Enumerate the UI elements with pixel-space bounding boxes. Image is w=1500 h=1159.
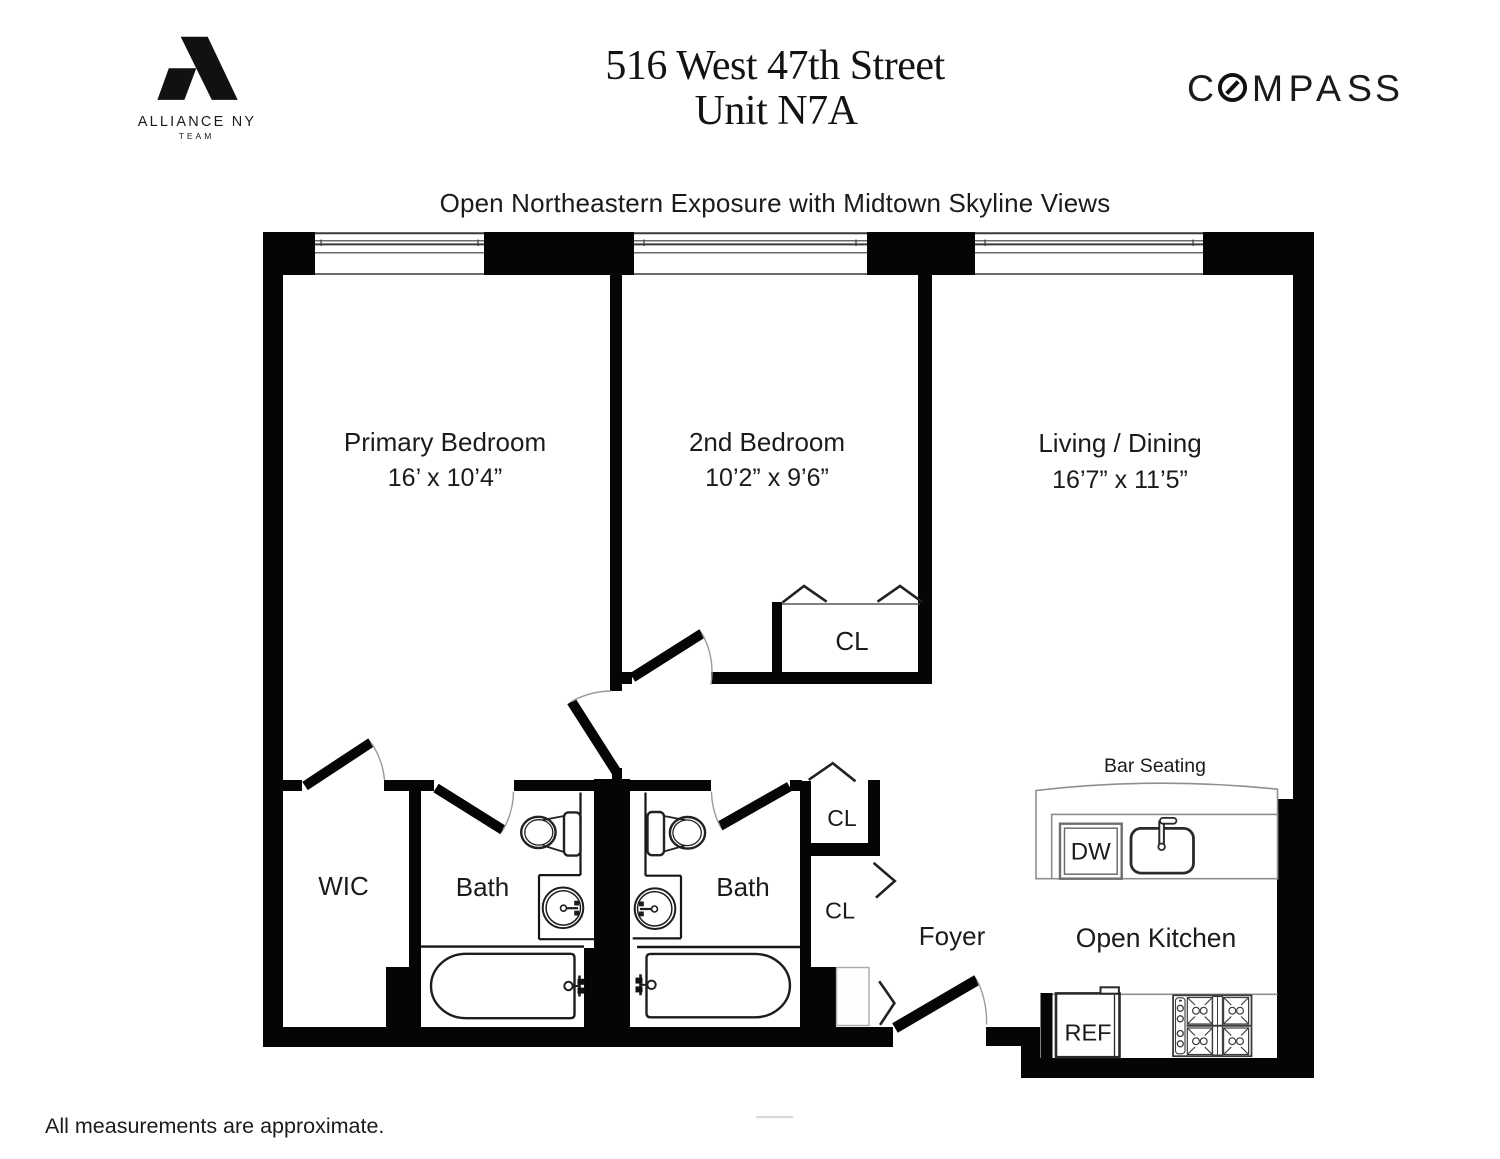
svg-text:M: M — [1252, 67, 1283, 109]
svg-text:Open Northeastern Exposure wit: Open Northeastern Exposure with Midtown … — [440, 188, 1111, 218]
svg-text:Unit N7A: Unit N7A — [695, 88, 859, 134]
svg-text:TEAM: TEAM — [179, 131, 215, 141]
svg-text:Bar Seating: Bar Seating — [1104, 755, 1206, 777]
svg-text:WIC: WIC — [318, 871, 369, 901]
svg-text:Living / Dining: Living / Dining — [1038, 428, 1201, 458]
svg-text:All measurements are approxima: All measurements are approximate. — [45, 1114, 384, 1138]
svg-text:Bath: Bath — [716, 872, 770, 902]
svg-text:S: S — [1347, 67, 1372, 109]
svg-text:16’7” x 11’5”: 16’7” x 11’5” — [1052, 466, 1188, 494]
svg-text:10’2” x 9’6”: 10’2” x 9’6” — [705, 464, 829, 492]
svg-text:A: A — [1316, 67, 1341, 109]
svg-text:C: C — [1187, 67, 1214, 109]
svg-text:Bath: Bath — [456, 872, 510, 902]
svg-text:Foyer: Foyer — [919, 921, 986, 951]
svg-text:Open Kitchen: Open Kitchen — [1076, 923, 1237, 953]
svg-text:S: S — [1375, 67, 1400, 109]
svg-text:DW: DW — [1071, 839, 1111, 866]
svg-text:16’ x 10’4”: 16’ x 10’4” — [388, 464, 502, 492]
svg-text:CL: CL — [825, 898, 855, 924]
svg-text:REF: REF — [1065, 1020, 1112, 1046]
svg-text:CL: CL — [835, 626, 868, 656]
svg-text:2nd Bedroom: 2nd Bedroom — [689, 427, 845, 457]
svg-text:P: P — [1288, 67, 1313, 109]
svg-text:Primary Bedroom: Primary Bedroom — [344, 427, 546, 457]
svg-text:ALLIANCE NY: ALLIANCE NY — [138, 114, 257, 130]
svg-text:CL: CL — [827, 805, 857, 831]
svg-text:516 West 47th Street: 516 West 47th Street — [605, 43, 945, 89]
